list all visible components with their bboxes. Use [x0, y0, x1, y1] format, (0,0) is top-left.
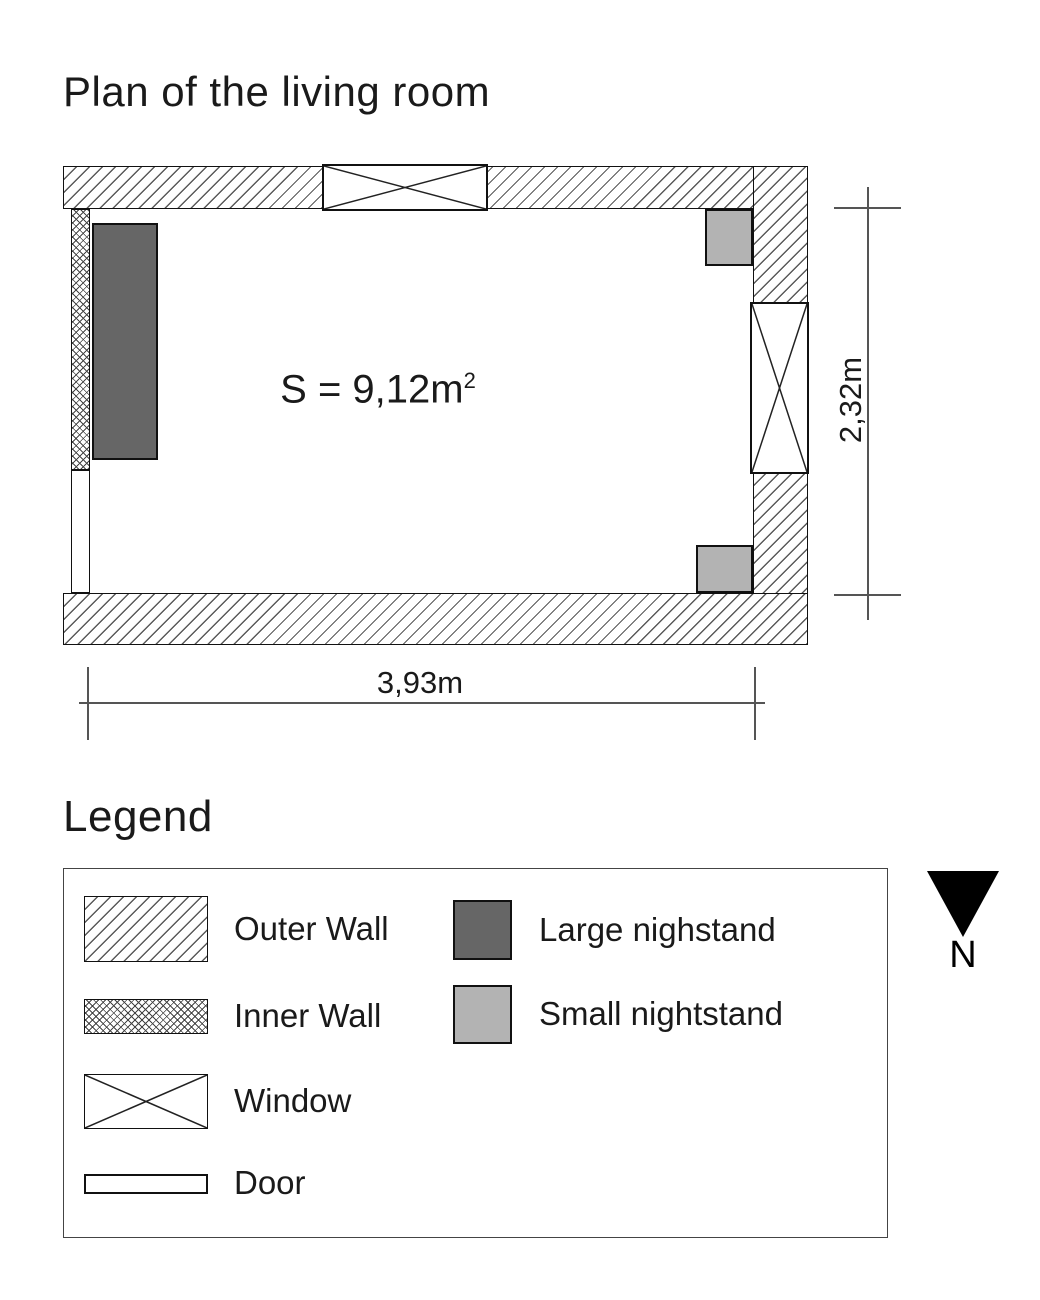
- north-arrow-icon: [927, 871, 999, 937]
- window-cross-icon: [324, 166, 486, 209]
- window-label: Window: [234, 1082, 351, 1120]
- page-title: Plan of the living room: [63, 68, 490, 116]
- height-dimension-label: 2,32m: [833, 357, 869, 443]
- window-right: [750, 302, 809, 474]
- outer-wall-bottom: [63, 593, 808, 645]
- window-swatch: [84, 1074, 208, 1129]
- height-dimension-tick-bottom: [834, 594, 901, 596]
- outer-wall-swatch: [84, 896, 208, 962]
- floor-plan: S = 9,12m2: [63, 164, 808, 645]
- width-dimension-line: [79, 702, 765, 704]
- legend-heading: Legend: [63, 792, 213, 842]
- outer-wall-right-upper: [753, 166, 808, 306]
- area-value: S = 9,12m: [280, 368, 463, 412]
- outer-wall-label: Outer Wall: [234, 910, 389, 948]
- area-exponent: 2: [464, 368, 476, 393]
- door: [71, 470, 90, 593]
- area-label: S = 9,12m2: [280, 368, 476, 413]
- small-nightstand-bottom: [696, 545, 753, 593]
- width-dimension-tick-right: [754, 667, 756, 740]
- window-cross-icon: [85, 1075, 207, 1128]
- door-swatch: [84, 1174, 208, 1194]
- large-nightstand-label: Large nighstand: [539, 911, 776, 949]
- inner-wall-label: Inner Wall: [234, 997, 381, 1035]
- large-nightstand-swatch: [453, 900, 512, 960]
- door-label: Door: [234, 1164, 306, 1202]
- height-dimension-tick-top: [834, 207, 901, 209]
- small-nightstand-swatch: [453, 985, 512, 1044]
- window-top: [322, 164, 488, 211]
- width-dimension-tick-left: [87, 667, 89, 740]
- inner-wall-swatch: [84, 999, 208, 1034]
- page: { "title": "Plan of the living room", "p…: [0, 0, 1040, 1300]
- legend-box: Outer Wall Inner Wall Window Door Large …: [63, 868, 888, 1238]
- small-nightstand-top: [705, 209, 753, 266]
- inner-wall: [71, 209, 90, 470]
- small-nightstand-label: Small nightstand: [539, 995, 783, 1033]
- north-label: N: [949, 934, 976, 977]
- large-nightstand: [92, 223, 158, 460]
- window-cross-icon: [752, 304, 807, 472]
- width-dimension-label: 3,93m: [377, 665, 463, 701]
